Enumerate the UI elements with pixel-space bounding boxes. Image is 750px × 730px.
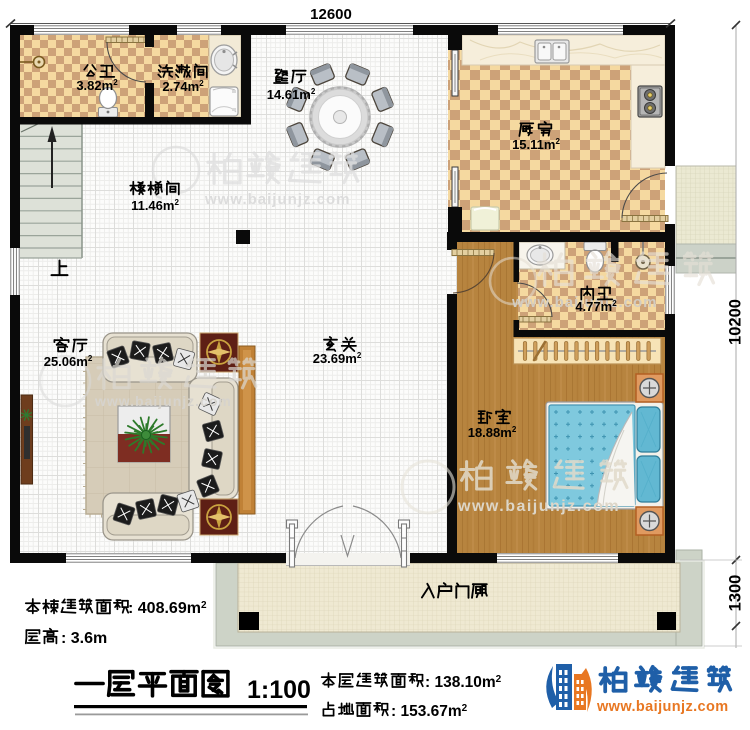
- svg-text:: 408.69m2: : 408.69m2: [128, 600, 207, 617]
- svg-text:3.82m2: 3.82m2: [76, 78, 118, 93]
- svg-text:4.77m2: 4.77m2: [575, 299, 617, 314]
- svg-text:15.11m2: 15.11m2: [512, 137, 560, 152]
- svg-text:23.69m2: 23.69m2: [313, 351, 362, 366]
- svg-text:18.88m2: 18.88m2: [468, 425, 517, 440]
- svg-text:: 3.6m: : 3.6m: [61, 630, 107, 647]
- svg-text:www.baijunjz.com: www.baijunjz.com: [204, 191, 350, 208]
- svg-text:2.74m2: 2.74m2: [162, 79, 204, 94]
- svg-text:: 138.10m2: : 138.10m2: [425, 674, 502, 691]
- svg-text:1:100: 1:100: [247, 676, 311, 704]
- svg-text:12600: 12600: [310, 6, 352, 23]
- svg-text:www.baijunjz.com: www.baijunjz.com: [94, 393, 232, 409]
- svg-text:14.61m2: 14.61m2: [267, 87, 316, 102]
- svg-text:1300: 1300: [727, 575, 745, 612]
- svg-text:www.baijunjz.com: www.baijunjz.com: [596, 699, 729, 715]
- svg-text:: 153.67m2: : 153.67m2: [391, 703, 468, 720]
- svg-text:25.06m2: 25.06m2: [44, 354, 93, 369]
- svg-text:11.46m2: 11.46m2: [131, 198, 179, 213]
- svg-text:www.baijunjz.com: www.baijunjz.com: [457, 498, 620, 515]
- svg-text:10200: 10200: [727, 299, 745, 345]
